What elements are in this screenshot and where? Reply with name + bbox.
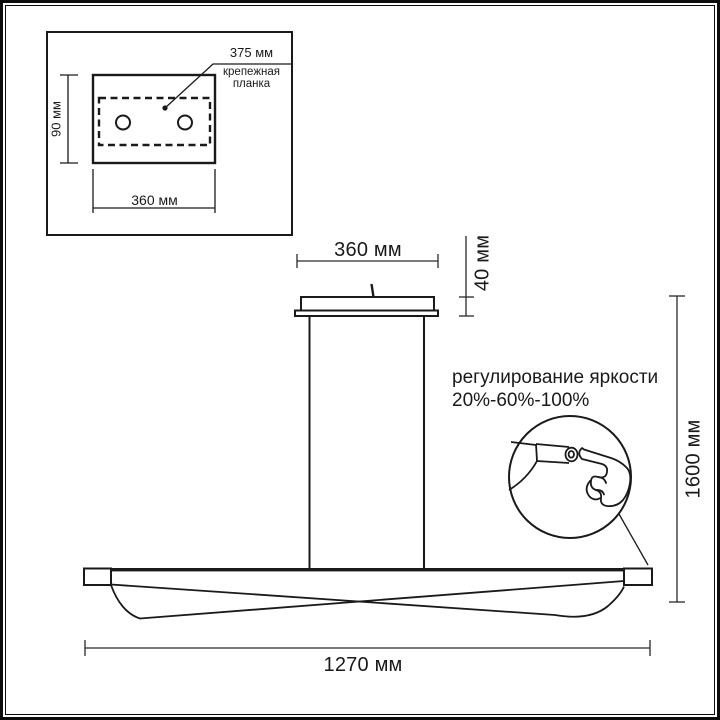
canopy-height-dim-label: 40 мм xyxy=(472,235,495,291)
canopy-pin xyxy=(372,284,374,297)
canopy-flange xyxy=(295,311,438,317)
brightness-adjust-title: регулирование яркости xyxy=(452,366,658,389)
canopy-box xyxy=(301,297,434,311)
body-width-dim-label: 1270 мм xyxy=(313,654,413,677)
canopy-outline-top-view xyxy=(93,75,215,163)
pointing-hand-icon xyxy=(579,448,630,506)
lamp-end-cap-right xyxy=(624,569,652,586)
lamp-end-cap-left xyxy=(84,569,111,586)
lamp-bar xyxy=(111,568,624,571)
callout-value-label: 375 мм xyxy=(211,45,292,60)
inset-width-dim-label: 360 мм xyxy=(114,192,195,208)
canopy-width-dim-label: 360 мм xyxy=(318,239,418,262)
diffuser-back-edge xyxy=(111,581,624,619)
drawing-stage: 375 мм крепежная планка 90 мм 360 мм 360… xyxy=(0,0,720,720)
brightness-levels-label: 20%-60%-100% xyxy=(452,389,589,412)
technical-drawing-canvas xyxy=(0,0,720,720)
inset-height-dim-label: 90 мм xyxy=(49,101,64,137)
detail-leader-line xyxy=(619,514,648,565)
dimension-drawing-page: { "figure": { "kind": "pendant luminaire… xyxy=(0,0,720,720)
lamp-body-drawing xyxy=(84,568,652,619)
screw-hole-right xyxy=(178,116,192,130)
screw-hole-left xyxy=(116,116,130,130)
total-height-dim-label: 1600 мм xyxy=(683,420,706,499)
ceiling-canopy-drawing xyxy=(295,284,438,569)
mounting-plate-label: крепежная планка xyxy=(211,66,292,90)
touch-dimmer-detail xyxy=(509,416,648,565)
lamp-bar-end-tube xyxy=(509,442,578,490)
